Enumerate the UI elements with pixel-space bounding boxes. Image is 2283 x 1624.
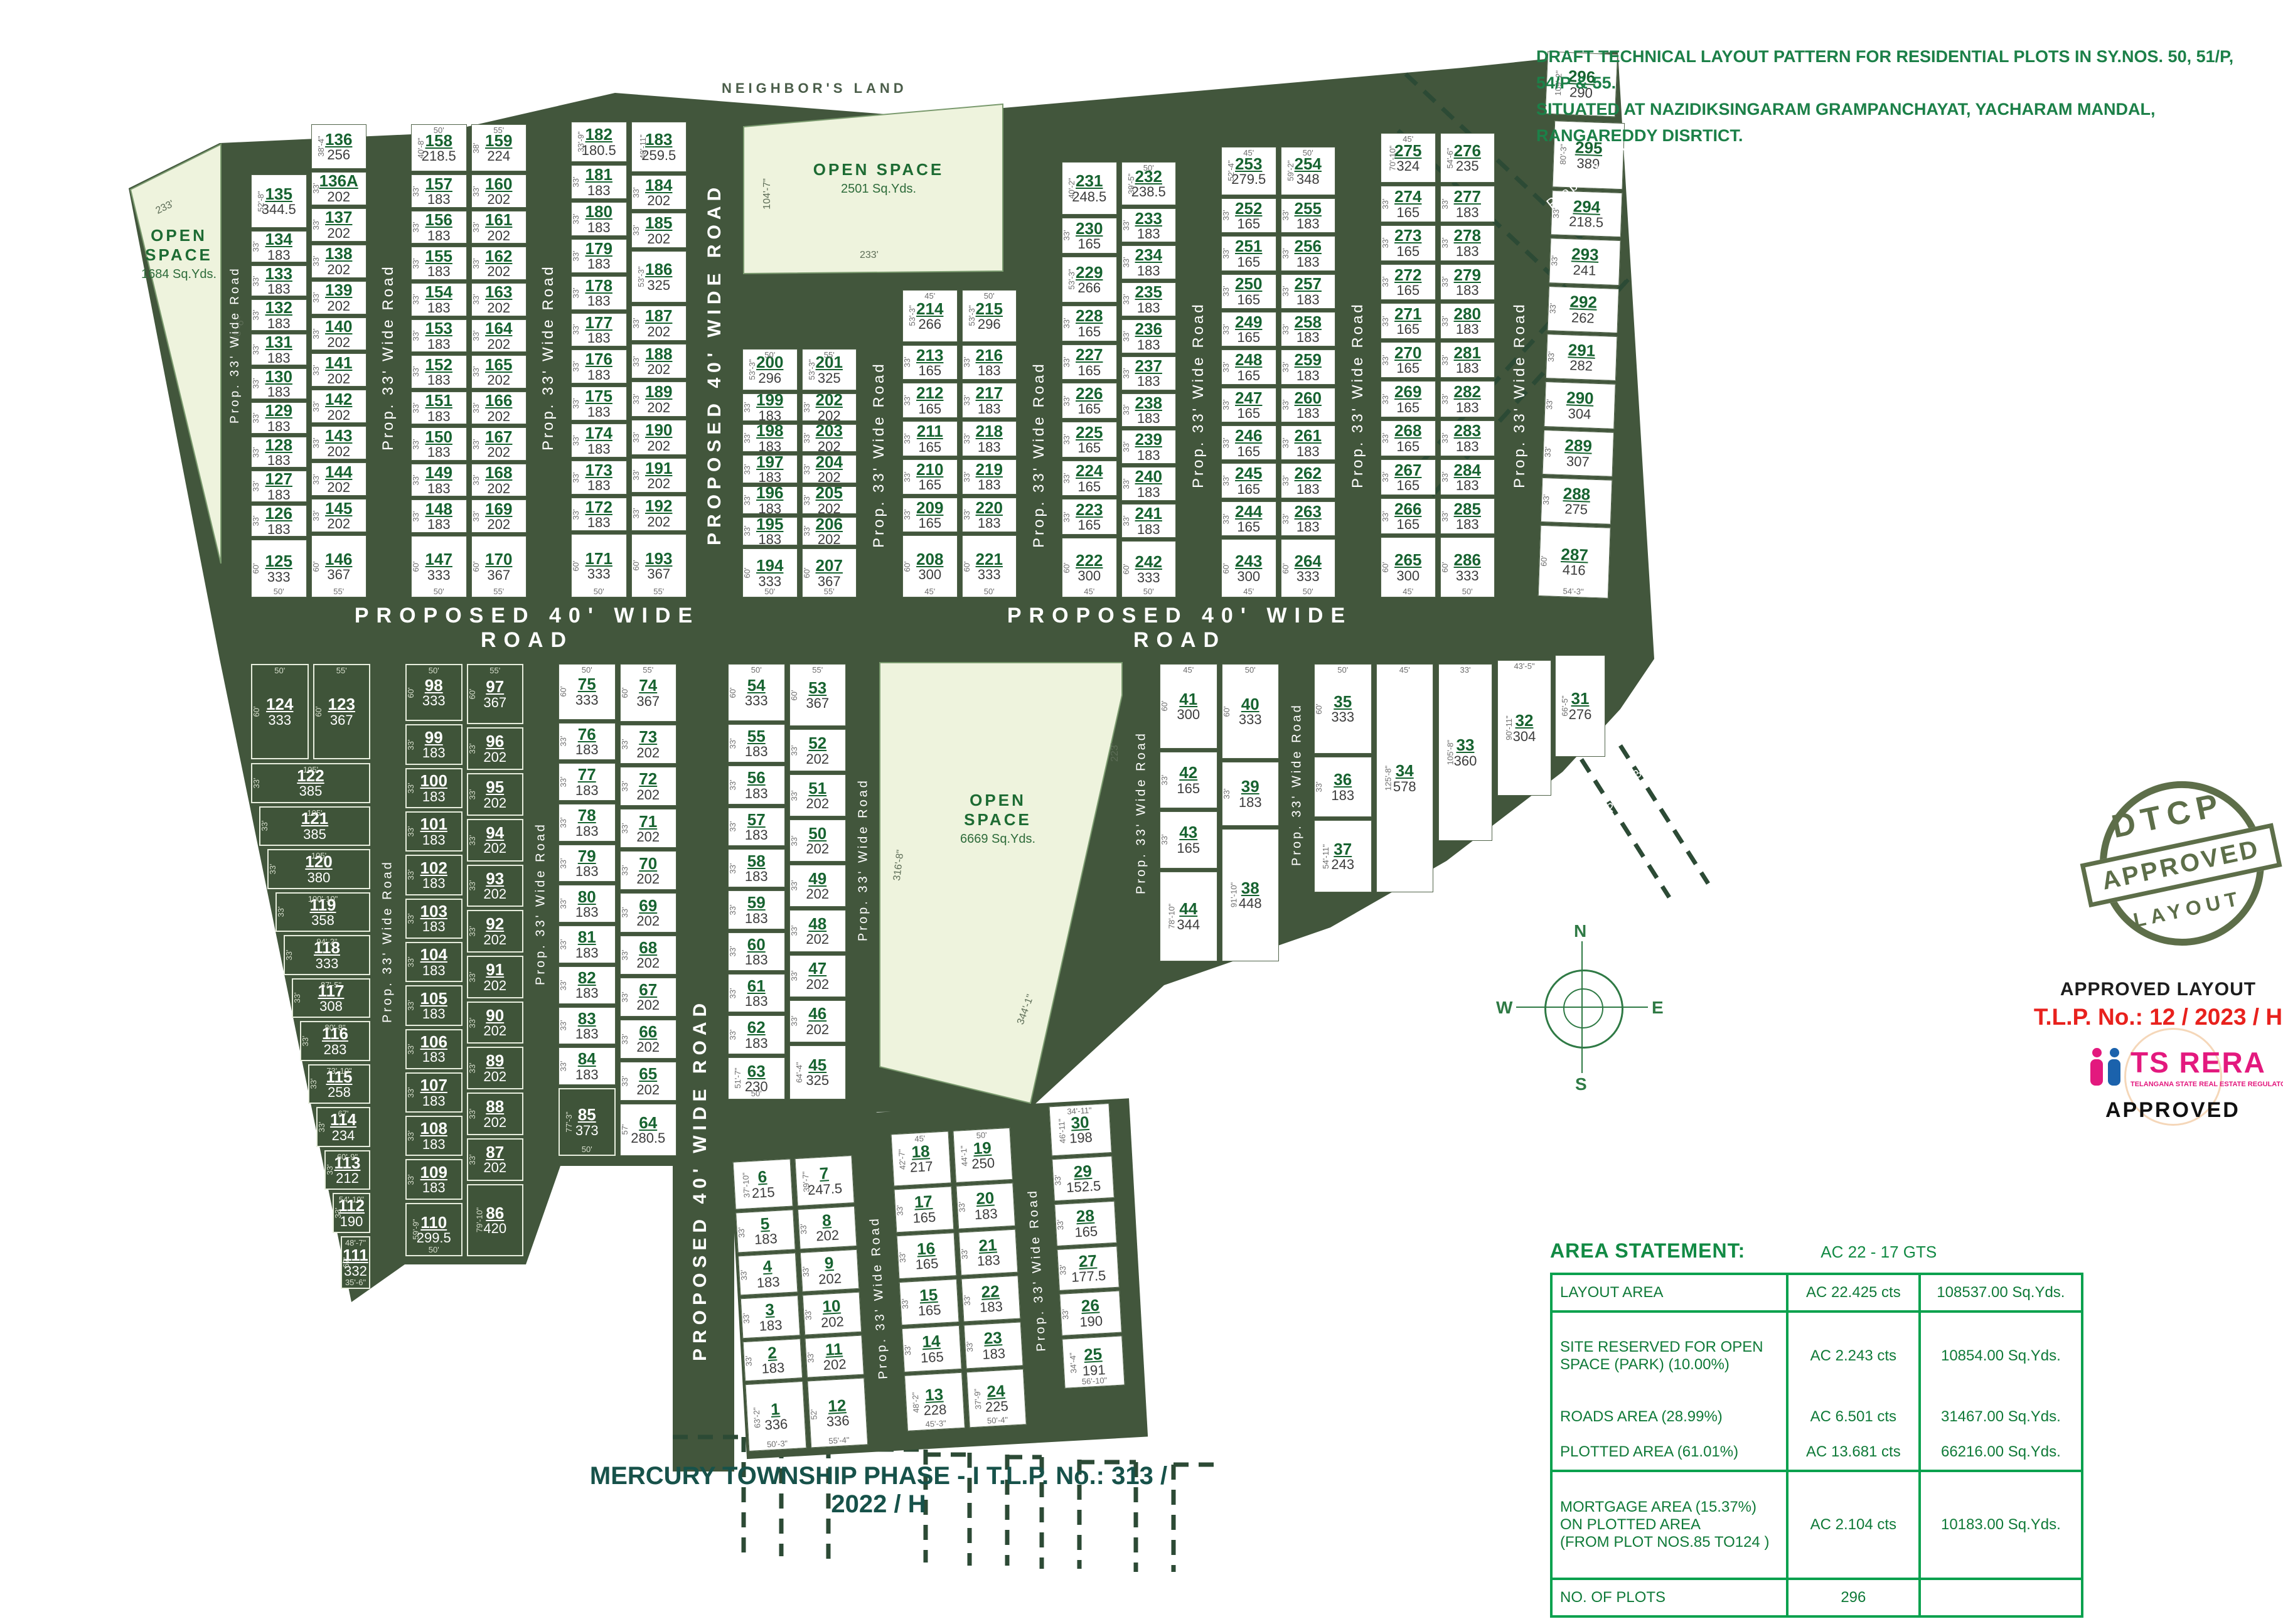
plot-number: 220 <box>976 499 1003 516</box>
plot-side-dim: 33' <box>571 324 580 335</box>
plot-81: 8118333' <box>559 926 616 963</box>
plot-area-sqyds: 180.5 <box>582 143 616 158</box>
plot-bottom-dim: 55'-4" <box>828 1435 850 1446</box>
plot-area-sqyds: 183 <box>758 439 781 454</box>
plot-number: 267 <box>1394 462 1421 479</box>
plot-number: 139 <box>325 282 352 299</box>
plot-285: 28518333' <box>1440 498 1495 534</box>
plot-side-dim: 33' <box>728 780 737 791</box>
plot-side-dim: 33' <box>741 1313 751 1324</box>
plot-top-dim: 55' <box>493 126 504 135</box>
plot-164: 16420233' <box>471 319 527 353</box>
plot-side-dim: 33' <box>902 471 912 482</box>
plot-area-sqyds: 247.5 <box>807 1181 842 1197</box>
plot-47: 4720233' <box>789 955 847 997</box>
plot-number: 65 <box>639 1066 657 1082</box>
plot-area-sqyds: 202 <box>647 476 670 491</box>
plot-top-dim: 50' <box>764 350 775 360</box>
plot-number: 218 <box>976 423 1003 440</box>
plot-206: 20620233' <box>802 517 857 545</box>
plot-area-sqyds: 280.5 <box>631 1131 665 1145</box>
plot-area-sqyds: 215 <box>751 1185 775 1200</box>
plot-top-dim: 55' <box>643 665 653 675</box>
plot-area-sqyds: 202 <box>327 371 350 386</box>
plot-side-dim: 33' <box>1381 393 1390 404</box>
road-33-south-1: Prop. 33' Wide Road <box>372 722 404 1161</box>
plot-56: 5618333' <box>728 766 785 804</box>
road-33-f-g: Prop. 33' Wide Road <box>1177 232 1221 558</box>
plot-area-sqyds: 183 <box>758 470 781 484</box>
plot-62: 6218333' <box>728 1015 785 1054</box>
plot-number: 236 <box>1135 321 1162 338</box>
plot-number: 125 <box>265 553 292 570</box>
road-33-d-e: Prop. 33' Wide Road <box>857 314 901 596</box>
rera-person-icon-blue <box>2108 1059 2120 1086</box>
plot-177: 17718333' <box>571 313 627 347</box>
plot-125: 12533360'50' <box>251 540 307 597</box>
plot-side-dim: 33' <box>619 865 629 876</box>
plot-area-sqyds: 256 <box>327 147 350 162</box>
plot-column: 50'158218.540'-8"15718333'15618333'15518… <box>411 124 467 597</box>
plot-10: 1020233' <box>802 1292 862 1335</box>
plot-195: 19518333' <box>742 517 798 545</box>
plot-area-sqyds: 183 <box>1456 205 1479 220</box>
plot-147: 14733360'50' <box>411 536 467 597</box>
plot-number: 91 <box>486 961 504 978</box>
plot-76: 7618333' <box>559 723 616 761</box>
plot-area-sqyds: 202 <box>818 532 841 547</box>
plot-number: 169 <box>485 501 512 518</box>
plot-side-dim: 33' <box>276 907 286 917</box>
plot-area-sqyds: 202 <box>636 1082 660 1097</box>
plot-number: 174 <box>585 425 612 442</box>
plot-top-dim: 54'-10" <box>339 1195 364 1204</box>
plot-144: 14420233' <box>311 462 367 496</box>
plot-number: 228 <box>1076 307 1103 324</box>
plot-side-dim: 33' <box>728 988 737 998</box>
plot-98: 50'9833360' <box>405 664 462 721</box>
plot-number: 133 <box>265 265 292 282</box>
block-265-286: 45'27532470'-10"27416533'27316533'272165… <box>1381 133 1495 597</box>
plot-number: 247 <box>1235 390 1262 407</box>
plot-side-dim: 33' <box>260 821 269 831</box>
plot-number: 130 <box>265 368 292 385</box>
plot-bottom-dim: 50' <box>984 587 995 596</box>
plot-area-sqyds: 183 <box>1137 485 1160 499</box>
road-33-g-h: Prop. 33' Wide Road <box>1336 232 1380 558</box>
plot-area-sqyds: 183 <box>427 481 451 496</box>
plot-area-sqyds: 183 <box>745 994 768 1008</box>
plot-side-dim: 33' <box>251 310 260 321</box>
plot-211: 21116533' <box>902 421 958 456</box>
row-acres: AC 2.243 cts <box>1787 1311 1920 1399</box>
plot-19: 50'1925044'-1" <box>953 1128 1013 1183</box>
plot-number: 176 <box>585 351 612 368</box>
plot-number: 276 <box>1454 142 1481 159</box>
plot-area-sqyds: 333 <box>745 693 768 708</box>
plot-number: 260 <box>1295 390 1322 407</box>
plot-number: 99 <box>425 729 443 746</box>
plot-number: 281 <box>1454 345 1481 361</box>
plot-top-dim: 50' <box>274 666 285 675</box>
plot-104: 10418333' <box>405 942 462 982</box>
plot-side-dim: 33' <box>1440 472 1449 483</box>
plot-side-dim: 33' <box>411 439 420 449</box>
plot-area-sqyds: 325 <box>647 278 670 292</box>
plot-139: 13920233' <box>311 281 367 314</box>
plot-area-sqyds: 250 <box>971 1155 995 1171</box>
plot-side-dim: 53'-3" <box>807 359 816 380</box>
plot-area-sqyds: 183 <box>1456 517 1479 532</box>
plot-number: 66 <box>639 1023 657 1040</box>
plot-number: 239 <box>1135 431 1162 448</box>
plot-bottom-dim: 45' <box>1403 587 1413 596</box>
plot-side-dim: 60' <box>471 561 480 572</box>
plot-bottom-dim: 50'-3" <box>767 1438 788 1449</box>
plot-area-sqyds: 183 <box>974 1206 998 1222</box>
plot-number: 141 <box>325 355 352 371</box>
plot-side-dim: 33' <box>1544 398 1554 409</box>
plot-column: 55'7436760'7320233'7220233'7120233'70202… <box>620 664 677 1156</box>
plot-area-sqyds: 183 <box>427 517 451 532</box>
plot-area-sqyds: 183 <box>1456 400 1479 415</box>
plot-bottom-dim: 50' <box>434 587 444 596</box>
plot-side-dim: 33' <box>411 258 420 269</box>
plot-number: 292 <box>1569 294 1597 311</box>
plot-area-sqyds: 190 <box>1079 1313 1103 1329</box>
plot-number: 161 <box>485 211 512 228</box>
row-label: ROADS AREA (28.99%) <box>1551 1399 1787 1434</box>
plot-number: 68 <box>639 939 657 956</box>
plot-number: 279 <box>1454 267 1481 284</box>
plot-area-sqyds: 202 <box>327 444 350 459</box>
south-cluster: 621537'-10"518333'418333'318333'218333'1… <box>728 1098 1148 1459</box>
plot-number: 160 <box>485 176 512 193</box>
plot-area-sqyds: 165 <box>1396 283 1420 297</box>
plot-area-sqyds: 183 <box>1297 482 1320 496</box>
plot-41: 45'4130060' <box>1160 664 1217 749</box>
plot-side-dim: 60' <box>571 560 580 571</box>
row-label: SITE RESERVED FOR OPEN SPACE (PARK) (10.… <box>1551 1311 1787 1399</box>
plot-area-sqyds: 202 <box>483 1160 506 1175</box>
plot-number: 56 <box>747 769 766 786</box>
plot-number: 102 <box>420 860 447 877</box>
plot-area-sqyds: 165 <box>1177 781 1200 796</box>
plot-number: 142 <box>325 391 352 408</box>
plot-side-dim: 33' <box>467 744 476 754</box>
plot-number: 252 <box>1235 200 1262 217</box>
plot-side-dim: 33' <box>411 294 420 305</box>
plot-top-dim: 55' <box>812 665 823 675</box>
plot-area-sqyds: 202 <box>818 470 841 484</box>
plot-area-sqyds: 183 <box>976 1253 1000 1268</box>
plot-135: 135344.552'-8" <box>251 174 307 228</box>
plot-side-dim: 33' <box>471 402 480 413</box>
plot-area-sqyds: 202 <box>327 226 350 240</box>
plot-18: 45'1821742'-7" <box>891 1131 951 1186</box>
plot-side-dim: 60' <box>411 561 420 572</box>
plot-side-dim: 33' <box>631 508 640 519</box>
plot-side-dim: 33' <box>902 357 912 368</box>
plot-number: 212 <box>916 385 943 402</box>
plot-42: 4216533' <box>1160 752 1217 808</box>
plot-side-dim: 33' <box>1280 437 1290 448</box>
plot-131: 13118333' <box>251 334 307 365</box>
plot-column: 50'7533360'7618333'7718333'7818333'79183… <box>559 664 616 1156</box>
plot-area-sqyds: 300 <box>1077 569 1101 583</box>
plot-67: 6720233' <box>620 978 677 1017</box>
plot-side-dim: 33' <box>1160 774 1169 785</box>
plot-number: 32 <box>1516 712 1534 729</box>
plot-197: 19718333' <box>742 455 798 483</box>
plot-number: 135 <box>265 186 292 203</box>
plot-area-sqyds: 165 <box>1237 368 1260 383</box>
plot-side-dim: 33' <box>1121 331 1130 341</box>
row-sqyds <box>1920 1579 2082 1616</box>
plot-number: 124 <box>266 696 293 713</box>
plot-number: 282 <box>1454 383 1481 400</box>
plot-area-sqyds: 300 <box>1177 707 1200 722</box>
plot-number: 51 <box>808 780 826 797</box>
compass-west: W <box>1496 998 1512 1018</box>
plot-side-dim: 52'-4" <box>1226 161 1236 181</box>
plot-area-sqyds: 348 <box>1297 172 1320 186</box>
plot-number: 266 <box>1394 501 1421 518</box>
plot-257: 25718333' <box>1281 274 1336 309</box>
plot-area-sqyds: 183 <box>422 876 446 890</box>
plot-30: 34'-11"3019846'-11" <box>1049 1103 1112 1157</box>
plot-area-sqyds: 183 <box>575 905 599 919</box>
plot-side-dim: 33' <box>251 242 260 252</box>
plot-top-dim: 100'-10" <box>308 894 338 904</box>
plot-152: 15218333' <box>411 355 467 388</box>
plot-side-dim: 33' <box>1053 1175 1063 1186</box>
plot-area-sqyds: 202 <box>816 1228 840 1244</box>
plot-207: 20736760'55' <box>802 548 857 597</box>
plot-area-sqyds: 344.5 <box>262 202 296 216</box>
road-33-b-c: Prop. 33' Wide Road <box>527 201 570 515</box>
plot-273: 27316533' <box>1381 225 1436 261</box>
plot-side-dim: 60' <box>251 563 260 574</box>
plot-17: 1716533' <box>894 1186 954 1232</box>
plot-number: 240 <box>1135 468 1162 485</box>
dtcp-stamp: DTCP APPROVED LAYOUT <box>2078 766 2280 973</box>
open-space-3-area: 6669 Sq.Yds. <box>929 832 1067 847</box>
plot-number: 193 <box>645 550 672 567</box>
plot-side-dim: 33' <box>728 821 737 832</box>
plot-top-dim: 87'-5" <box>321 980 341 990</box>
plot-area-sqyds: 183 <box>422 1094 446 1108</box>
plot-area-sqyds: 202 <box>647 515 670 529</box>
plot-215: 50'21529653'-3" <box>962 290 1017 342</box>
plot-223: 22316533' <box>1062 499 1117 535</box>
plot-side-dim: 33' <box>311 474 320 484</box>
plot-side-dim: 33' <box>742 433 752 444</box>
plot-72: 7220233' <box>620 767 677 806</box>
plot-column: 45'253279.552'-4"25216533'25116533'25016… <box>1221 147 1276 597</box>
plot-number: 243 <box>1235 553 1262 570</box>
plot-side-dim: 33' <box>1381 472 1390 483</box>
plot-area-sqyds: 333 <box>422 693 446 708</box>
plot-side-dim: 33' <box>311 365 320 375</box>
plot-area-sqyds: 183 <box>427 373 451 387</box>
plot-area-sqyds: 183 <box>587 405 611 419</box>
plot-top-dim: 45' <box>1183 665 1194 675</box>
plot-side-dim: 53'-3" <box>636 267 646 287</box>
plot-239: 23918333' <box>1121 430 1177 464</box>
plot-111: 48'-7"11133267'35'-6" <box>341 1236 370 1289</box>
plot-95: 9520233' <box>467 773 524 816</box>
plot-side-dim: 33' <box>559 817 568 828</box>
plot-side-dim: 33' <box>1440 511 1449 521</box>
plot-number: 196 <box>756 484 783 501</box>
plot-39: 3918333' <box>1222 762 1280 826</box>
block-123-124: 50'12433360'55'12336760' <box>251 664 370 759</box>
plot-number: 136 <box>325 131 352 148</box>
plot-area-sqyds: 380 <box>307 870 331 885</box>
plot-area-sqyds: 183 <box>745 828 768 842</box>
block-13-24: 45'1821742'-7"1716533'1616533'1516533'14… <box>891 1128 1027 1431</box>
plot-251: 25116533' <box>1221 236 1276 270</box>
plot-area-sqyds: 202 <box>327 335 350 350</box>
plot-side-dim: 33' <box>251 481 260 492</box>
plot-number: 144 <box>325 464 352 481</box>
plot-204: 20420233' <box>802 455 857 483</box>
page-title: DRAFT TECHNICAL LAYOUT PATTERN FOR RESID… <box>1536 44 2264 149</box>
plot-area-sqyds: 165 <box>1177 841 1200 855</box>
plot-number: 173 <box>585 462 612 479</box>
plot-side-dim: 33' <box>965 1341 975 1352</box>
plot-132: 13218333' <box>251 299 307 331</box>
plot-260: 26018333' <box>1281 388 1336 422</box>
plot-area-sqyds: 202 <box>818 1271 842 1286</box>
plot-area-sqyds: 243 <box>1331 857 1354 872</box>
plot-area-sqyds: 165 <box>918 478 941 492</box>
plot-number: 92 <box>486 916 504 932</box>
plot-side-dim: 33' <box>317 1121 326 1132</box>
plot-side-dim: 51'-7" <box>733 1068 742 1089</box>
plot-top-dim: 48'-7" <box>345 1238 366 1247</box>
plot-area-sqyds: 165 <box>1237 406 1260 420</box>
plot-area-sqyds: 202 <box>806 841 829 856</box>
plot-side-dim: 33' <box>406 1000 415 1011</box>
plot-number: 269 <box>1394 383 1421 400</box>
plot-118: 94'-2"11833333' <box>284 935 370 975</box>
plot-side-dim: 33' <box>284 949 294 960</box>
plot-75: 50'7533360' <box>559 664 616 720</box>
plot-area-sqyds: 183 <box>1137 411 1160 425</box>
plot-side-dim: 60' <box>728 687 737 698</box>
plot-top-dim: 50' <box>434 126 444 135</box>
plot-area-sqyds: 202 <box>647 193 670 208</box>
plot-269: 26916533' <box>1381 381 1436 417</box>
plot-side-dim: 33'-9" <box>576 132 585 152</box>
plot-number: 256 <box>1295 238 1322 255</box>
plot-242: 24233360'50' <box>1121 541 1177 597</box>
plot-number: 202 <box>816 392 843 409</box>
plot-number: 48 <box>808 916 826 932</box>
plot-area-sqyds: 202 <box>487 373 510 387</box>
plot-side-dim: 33' <box>619 991 629 1002</box>
plot-area-sqyds: 202 <box>483 1115 506 1130</box>
plot-side-dim: 33' <box>1440 355 1449 365</box>
plot-number: 104 <box>420 946 447 963</box>
plot-283: 28318333' <box>1440 420 1495 456</box>
plot-160: 16020233' <box>471 174 527 208</box>
block-34-37: 50'3533360'3618333'3724354'-11"45'345781… <box>1314 664 1433 892</box>
plot-number: 154 <box>425 284 452 301</box>
plot-167: 16720233' <box>471 427 527 461</box>
plot-14: 1416533' <box>902 1325 961 1372</box>
plot-200: 50'20029653'-3" <box>742 349 798 390</box>
plot-area-sqyds: 183 <box>1456 322 1479 336</box>
plot-area-sqyds: 165 <box>1077 324 1101 339</box>
dim-os2-bottom: 233' <box>860 250 879 261</box>
plot-top-dim: 50' <box>984 291 995 301</box>
table-row: PLOTTED AREA (61.01%) AC 13.681 cts 6621… <box>1551 1434 2082 1471</box>
plot-141: 14120233' <box>311 353 367 387</box>
plot-182: 182180.533'-9" <box>571 122 627 162</box>
plot-52: 5220233' <box>789 729 847 771</box>
plot-area-sqyds: 190 <box>340 1214 363 1229</box>
plot-side-dim: 63'-2" <box>752 1407 762 1428</box>
plot-column: 45'34578125'-8" <box>1376 664 1434 892</box>
plot-number: 9 <box>824 1254 834 1271</box>
block-38-44: 45'4130060'4216533'4316533'4434478'-10"5… <box>1160 664 1279 961</box>
plot-area-sqyds: 333 <box>268 713 291 727</box>
plot-31: 3127666'-5" <box>1555 655 1605 757</box>
open-space-1-area: 1684 Sq.Yds. <box>132 267 226 282</box>
plot-area-sqyds: 333 <box>427 568 451 582</box>
plot-side-dim: 37'-9" <box>972 1389 983 1410</box>
plot-top-dim: 45' <box>1403 134 1413 144</box>
plot-134: 13418333' <box>251 231 307 262</box>
plot-271: 27116533' <box>1381 303 1436 339</box>
plot-side-dim: 33' <box>471 294 480 305</box>
plot-number: 42 <box>1179 764 1197 781</box>
plot-column: 3127666'-5" <box>1555 655 1605 757</box>
plot-136A: 136A20233' <box>311 172 367 205</box>
block-147-170: 50'158218.540'-8"15718333'15618333'15518… <box>411 124 527 597</box>
plot-area-sqyds: 202 <box>806 932 829 946</box>
plot-129: 12918333' <box>251 402 307 434</box>
plot-number: 52 <box>808 735 826 752</box>
plot-side-dim: 33' <box>1221 513 1231 524</box>
plot-area-sqyds: 266 <box>918 317 941 331</box>
plot-number: 41 <box>1179 691 1197 708</box>
plot-number: 60 <box>747 936 766 953</box>
plot-side-dim: 33' <box>311 401 320 412</box>
plot-number: 147 <box>425 551 452 568</box>
plot-71: 7120233' <box>620 809 677 848</box>
plot-area-sqyds: 299.5 <box>417 1231 451 1245</box>
plot-279: 27918333' <box>1440 264 1495 300</box>
plot-number: 290 <box>1566 389 1594 407</box>
plot-number: 74 <box>639 677 657 694</box>
plot-286: 28633360'50' <box>1440 537 1495 597</box>
plot-74: 55'7436760' <box>620 664 677 722</box>
plot-number: 132 <box>265 299 292 316</box>
plot-area-sqyds: 420 <box>483 1221 506 1236</box>
open-space-1-name: OPEN SPACE <box>132 226 226 265</box>
plot-area-sqyds: 202 <box>487 264 510 279</box>
plot-area-sqyds: 183 <box>422 1007 446 1021</box>
compass: N E S W <box>1529 954 1635 1060</box>
plot-16: 1616533' <box>897 1232 956 1279</box>
plot-side-dim: 33' <box>801 526 811 537</box>
row-sqyds: 10183.00 Sq.Yds. <box>1920 1471 2082 1579</box>
plot-number: 181 <box>585 166 612 183</box>
